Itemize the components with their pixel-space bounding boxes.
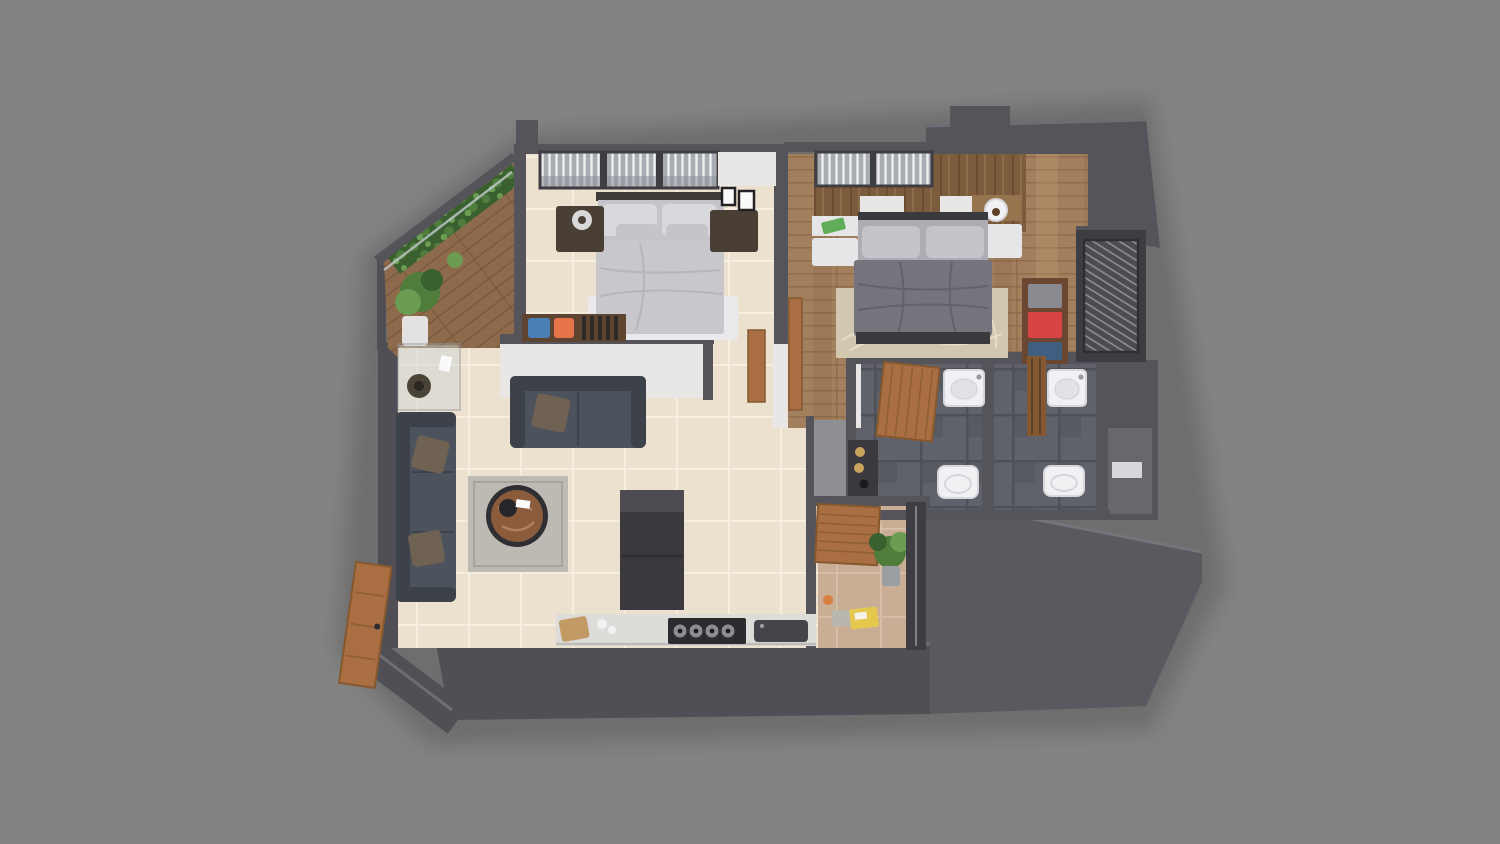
burner-center	[726, 629, 731, 634]
burner-center	[694, 629, 699, 634]
burner-center	[678, 629, 683, 634]
bedroom1-door	[748, 330, 765, 402]
candle	[854, 463, 864, 473]
table-tray	[499, 499, 517, 517]
floorplan-stage	[0, 0, 1500, 844]
master-nightstand-left	[812, 238, 858, 266]
master-window-mullion	[870, 152, 876, 186]
washbasin-bowl	[951, 379, 977, 399]
console-lamp-top	[414, 381, 424, 391]
nightstand-right	[710, 210, 758, 252]
master-bed-frame-foot	[856, 332, 990, 344]
bedroom-separator-wall	[774, 144, 788, 344]
plant-pot	[402, 316, 428, 346]
sofa3-backrest	[396, 412, 410, 602]
utility-railing-bars	[909, 506, 923, 646]
potted-plant-foliage	[421, 269, 443, 291]
burner-center	[710, 629, 715, 634]
bathroom2-door	[1027, 356, 1046, 436]
potted-plant-foliage	[395, 289, 421, 315]
small-plant	[447, 252, 463, 268]
storage-folder	[832, 610, 852, 626]
kitchen-faucet	[760, 624, 764, 628]
wardrobe-clothes-red	[1028, 312, 1062, 338]
wardrobe-box	[1028, 284, 1062, 308]
storage-box	[849, 607, 879, 630]
washbasin-bowl	[1055, 379, 1079, 399]
utility-door	[815, 504, 880, 565]
master-bedroom-door	[789, 298, 802, 410]
sofa2-backrest	[510, 376, 646, 391]
master-pillow	[862, 226, 920, 258]
sofa3-armrest	[396, 587, 456, 602]
bed1-headboard	[596, 192, 726, 201]
vestibule-west-post	[703, 334, 713, 400]
utility-plant-foliage	[869, 533, 887, 551]
throw-pillow	[531, 393, 571, 433]
bottle	[860, 480, 869, 489]
master-pillow	[926, 226, 984, 258]
faucet	[976, 374, 981, 379]
arc-lamp-center	[578, 216, 586, 224]
refrigerator-top	[620, 490, 684, 512]
folded-clothes-orange	[554, 318, 574, 338]
glass-console-table	[398, 344, 460, 410]
balcony-railing-grid	[1084, 240, 1138, 352]
bathroom2-east-wall	[1096, 364, 1106, 518]
coffee-table	[486, 485, 548, 547]
picture-frame	[722, 188, 735, 205]
kitchen-jar	[608, 626, 616, 634]
utility-plant-pot	[882, 566, 900, 586]
folded-clothes-blue	[528, 318, 550, 338]
throw-pillow	[407, 529, 445, 567]
sofa3-armrest	[396, 412, 456, 427]
wall-duct-tab	[950, 106, 1010, 128]
window-glass-shade	[540, 176, 718, 188]
three-seat-sofa	[396, 412, 456, 602]
sofa2-armrest	[631, 376, 646, 448]
drum-lamp-deco	[992, 208, 1000, 216]
window-mullion	[600, 152, 607, 188]
wall-band-bottom	[436, 644, 930, 720]
picture-frame	[739, 191, 754, 210]
two-seat-sofa	[510, 376, 646, 448]
master-duvet	[854, 260, 992, 336]
lobby-west-wall	[806, 416, 814, 504]
candle	[855, 447, 865, 457]
sofa2-armrest	[510, 376, 525, 448]
corridor-west-wall	[773, 344, 787, 428]
bathroom1-door	[876, 362, 939, 441]
master-balcony	[1076, 226, 1146, 362]
utility-jar	[823, 595, 833, 605]
floorplan-render	[0, 0, 1500, 844]
window-mullion	[656, 152, 663, 188]
headboard-accent	[860, 196, 904, 214]
bathroom-south-wall	[846, 510, 1110, 520]
service-fixture	[1112, 462, 1142, 478]
kitchen-jar	[597, 619, 607, 629]
storage-box-label	[854, 612, 867, 620]
kitchen-sink	[754, 620, 808, 642]
north-wall-segment	[718, 152, 776, 186]
faucet	[1078, 374, 1083, 379]
coffee-table-top	[491, 490, 543, 542]
